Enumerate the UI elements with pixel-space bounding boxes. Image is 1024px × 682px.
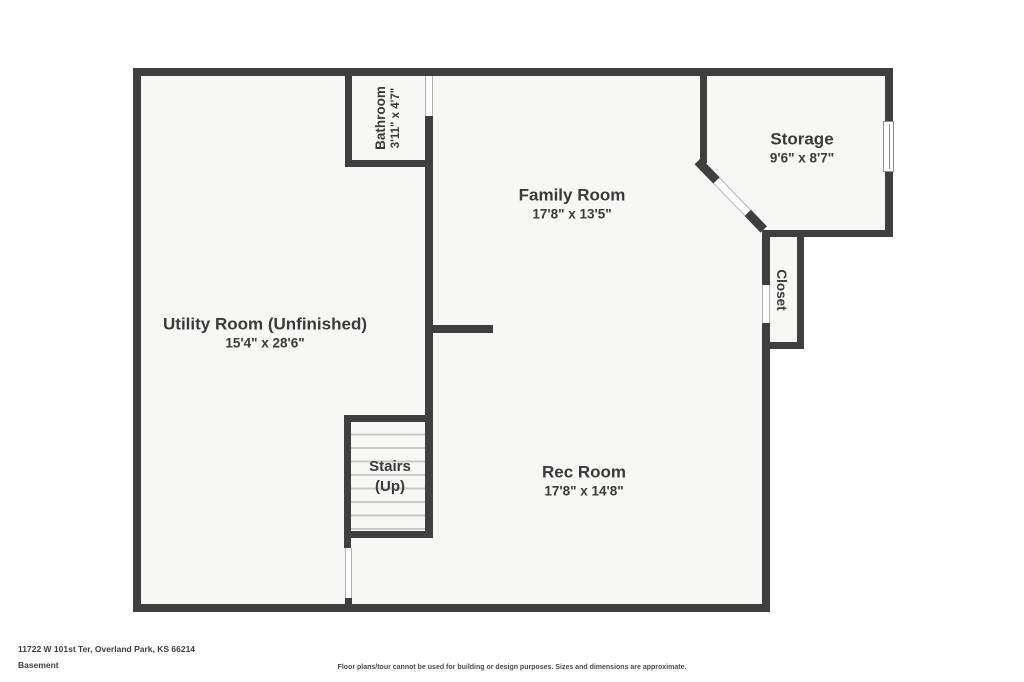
wall-stairs-top xyxy=(344,415,433,422)
floor-plan-page: Bathroom 3'11" x 4'7" Family Room 17'8" … xyxy=(0,0,1024,682)
rec-room-label: Rec Room 17'8" x 14'8" xyxy=(542,462,626,499)
wall-family-rec-stub xyxy=(425,325,493,333)
utility-room-label: Utility Room (Unfinished) 15'4" x 28'6" xyxy=(163,314,367,351)
wall-closet-left-upper xyxy=(762,230,770,285)
wall-exterior-right-lower xyxy=(762,342,770,612)
bathroom-label: Bathroom 3'11" x 4'7" xyxy=(373,86,403,150)
stairs-line1: Stairs xyxy=(369,457,411,477)
wall-exterior-left xyxy=(133,68,141,612)
bathroom-door-opening xyxy=(425,76,433,116)
bathroom-dims: 3'11" x 4'7" xyxy=(388,86,403,150)
wall-closet-right xyxy=(797,230,804,349)
disclaimer-text: Floor plans/tour cannot be used for buil… xyxy=(0,664,1024,671)
wall-bathroom-bottom xyxy=(345,160,433,167)
rec-room-dims: 17'8" x 14'8" xyxy=(542,482,626,500)
rec-room-name: Rec Room xyxy=(542,462,626,482)
wall-stairs-left xyxy=(344,415,351,548)
utility-room-dims: 15'4" x 28'6" xyxy=(163,334,367,352)
storage-label: Storage 9'6" x 8'7" xyxy=(770,129,834,166)
wall-stairs-bottom xyxy=(344,531,433,538)
bathroom-name: Bathroom xyxy=(373,86,389,150)
wall-bathroom-left xyxy=(345,76,352,167)
stairs-line2: (Up) xyxy=(369,477,411,497)
wall-storage-bottom xyxy=(762,230,893,237)
wall-storage-left xyxy=(700,76,707,163)
stairs-label: Stairs (Up) xyxy=(369,457,411,498)
wall-exterior-bottom xyxy=(133,604,770,612)
closet-label: Closet xyxy=(773,269,789,310)
storage-name: Storage xyxy=(770,129,834,149)
storage-window xyxy=(883,121,894,172)
wall-closet-left-lower xyxy=(762,323,770,349)
storage-dims: 9'6" x 8'7" xyxy=(770,149,834,167)
family-room-label: Family Room 17'8" x 13'5" xyxy=(519,185,626,222)
window-pane-line xyxy=(889,124,890,169)
family-room-dims: 17'8" x 13'5" xyxy=(519,205,626,223)
utility-door-opening xyxy=(345,548,352,598)
family-room-name: Family Room xyxy=(519,185,626,205)
property-address: 11722 W 101st Ter, Overland Park, KS 662… xyxy=(18,644,195,654)
wall-exterior-top xyxy=(133,68,893,76)
closet-name: Closet xyxy=(773,269,789,310)
utility-room-name: Utility Room (Unfinished) xyxy=(163,314,367,334)
closet-door-opening xyxy=(762,285,770,323)
wall-understairs-stub xyxy=(345,598,352,606)
